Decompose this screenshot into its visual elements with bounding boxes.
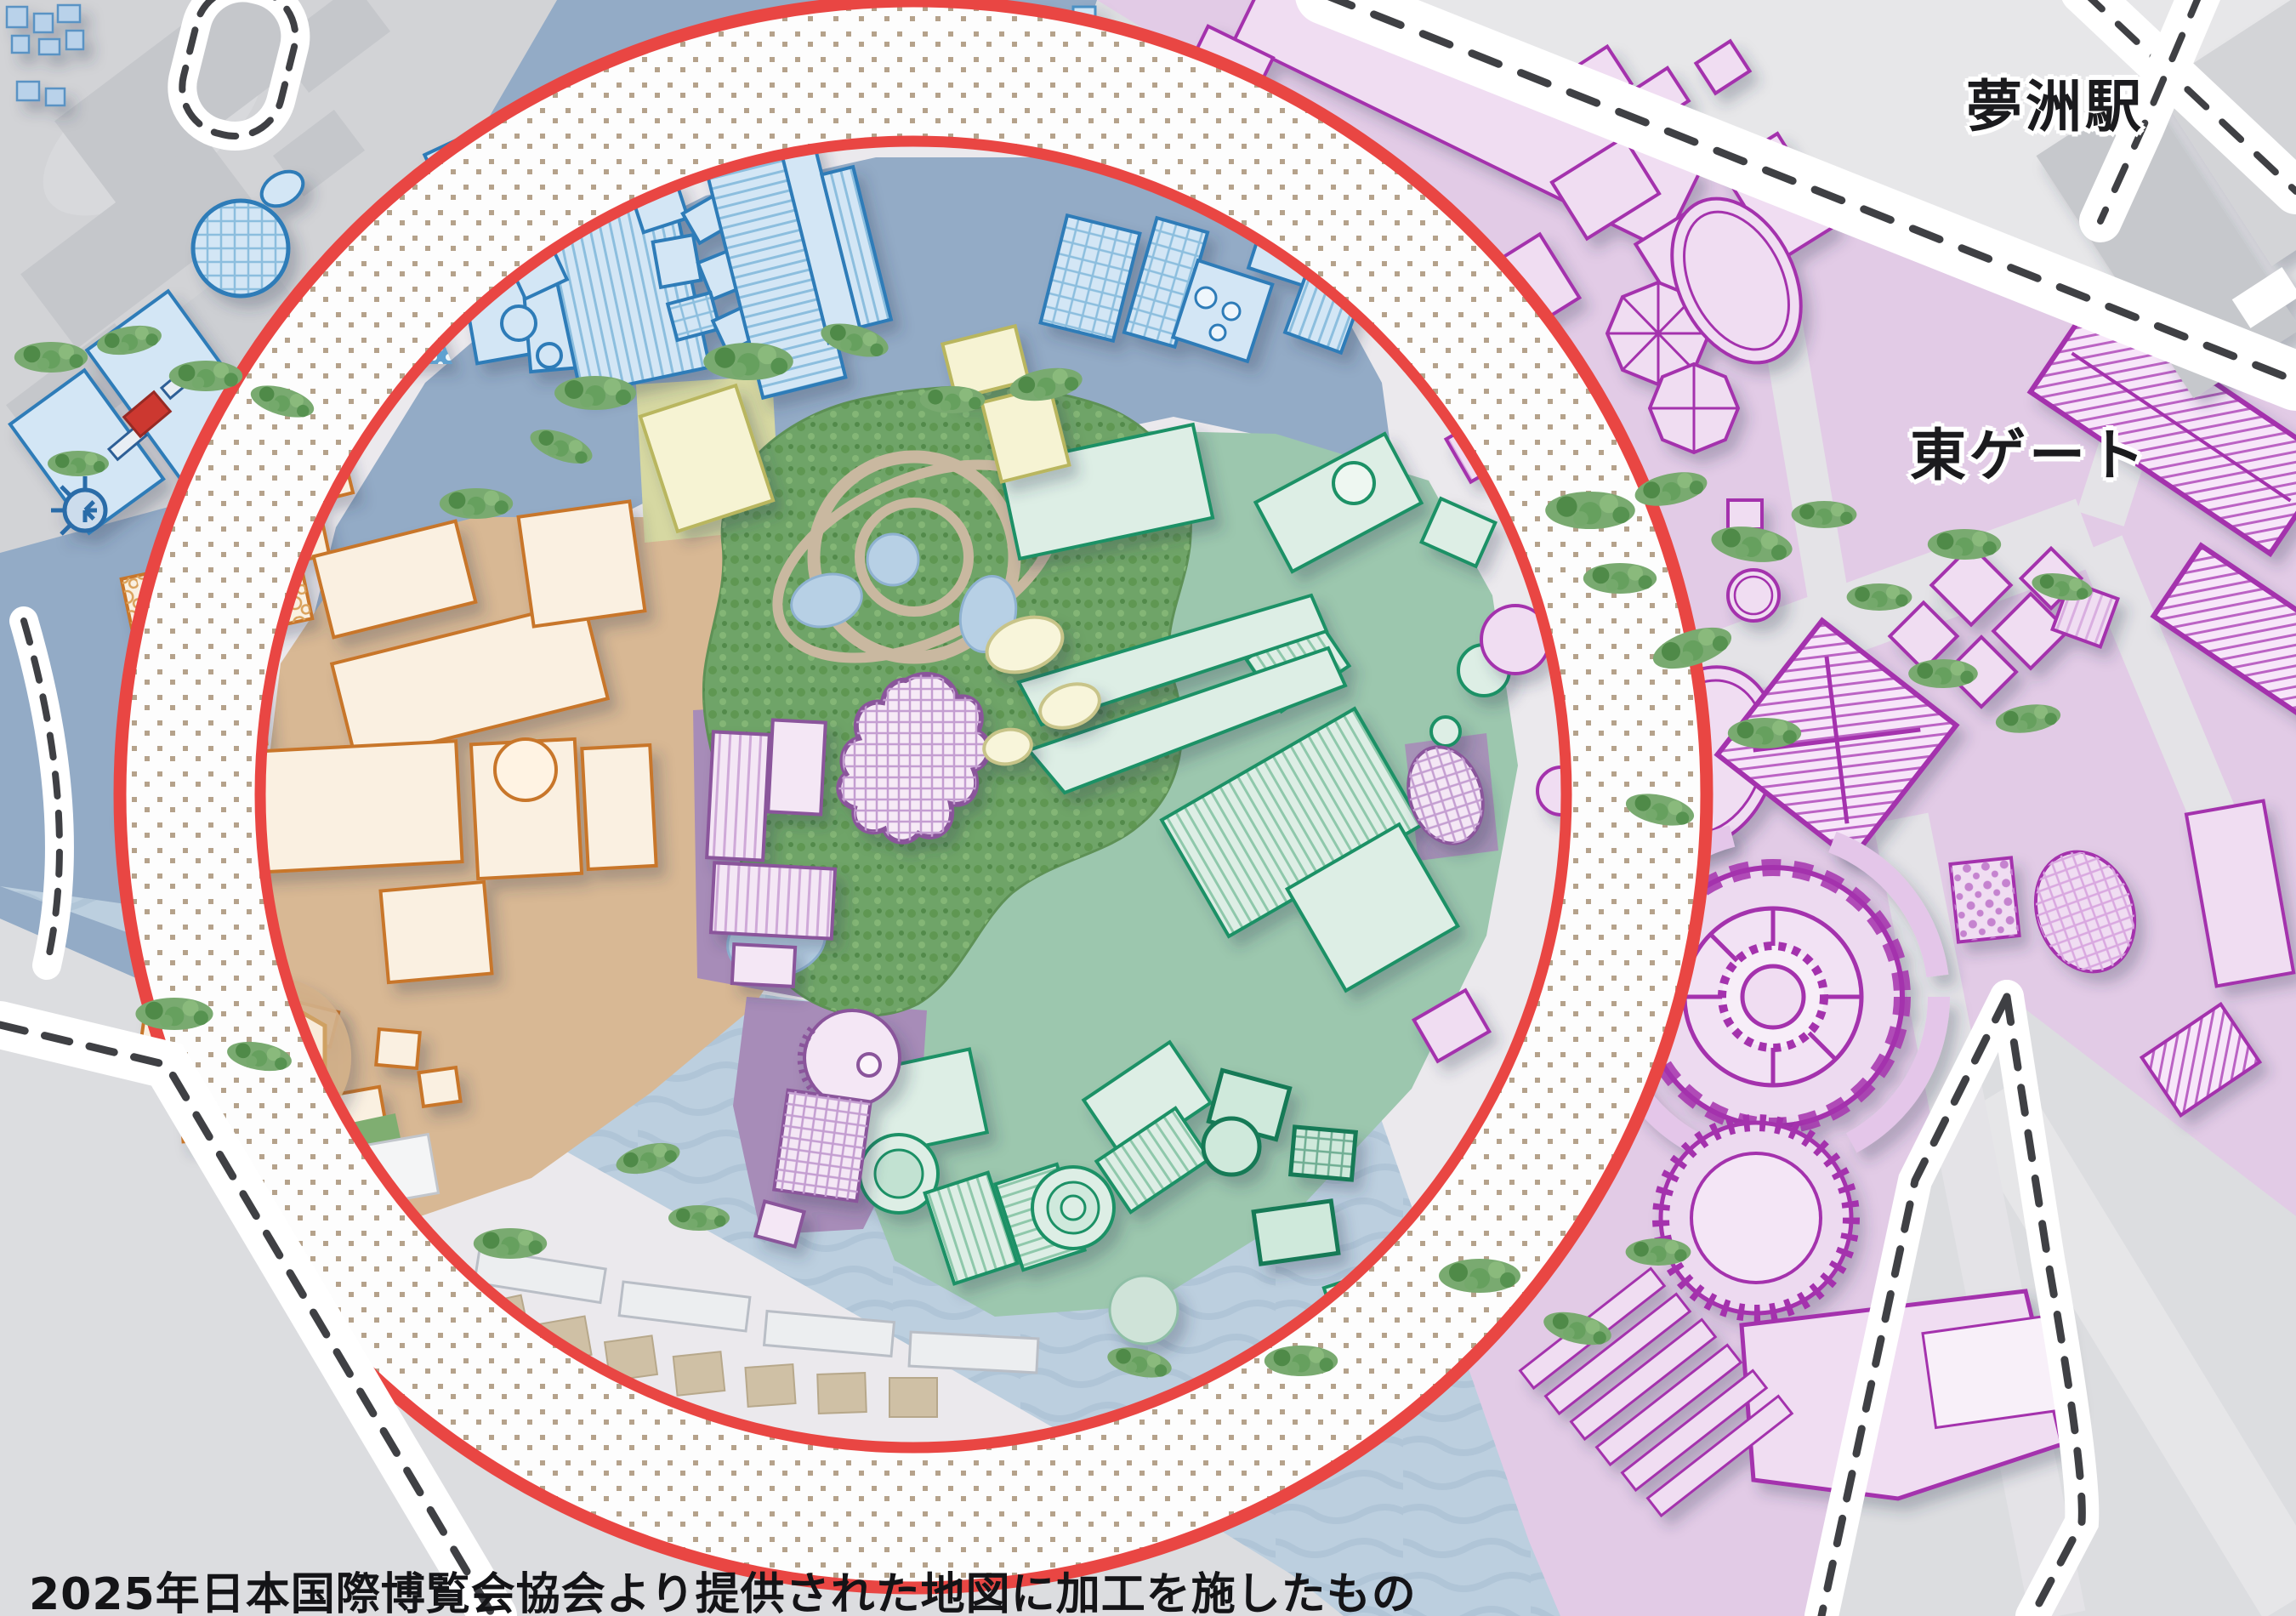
flower-tent	[1650, 364, 1738, 452]
ring-stadium-pavilion	[1661, 1123, 1851, 1313]
east-gate-label: 東ゲート	[1910, 410, 2148, 492]
expo-site-map: 夢洲駅 東ゲート 2025年日本国際博覧会協会より提供された地図に加工を施したも…	[0, 0, 2296, 1616]
attribution-text: 2025年日本国際博覧会協会より提供された地図に加工を施したもの	[29, 1558, 1417, 1616]
dome-pavilion	[193, 201, 288, 296]
central-pond	[867, 534, 918, 585]
trefoil-pavilion	[804, 1010, 900, 1106]
station-label: 夢洲駅	[1966, 61, 2145, 143]
map-canvas	[0, 0, 2296, 1616]
